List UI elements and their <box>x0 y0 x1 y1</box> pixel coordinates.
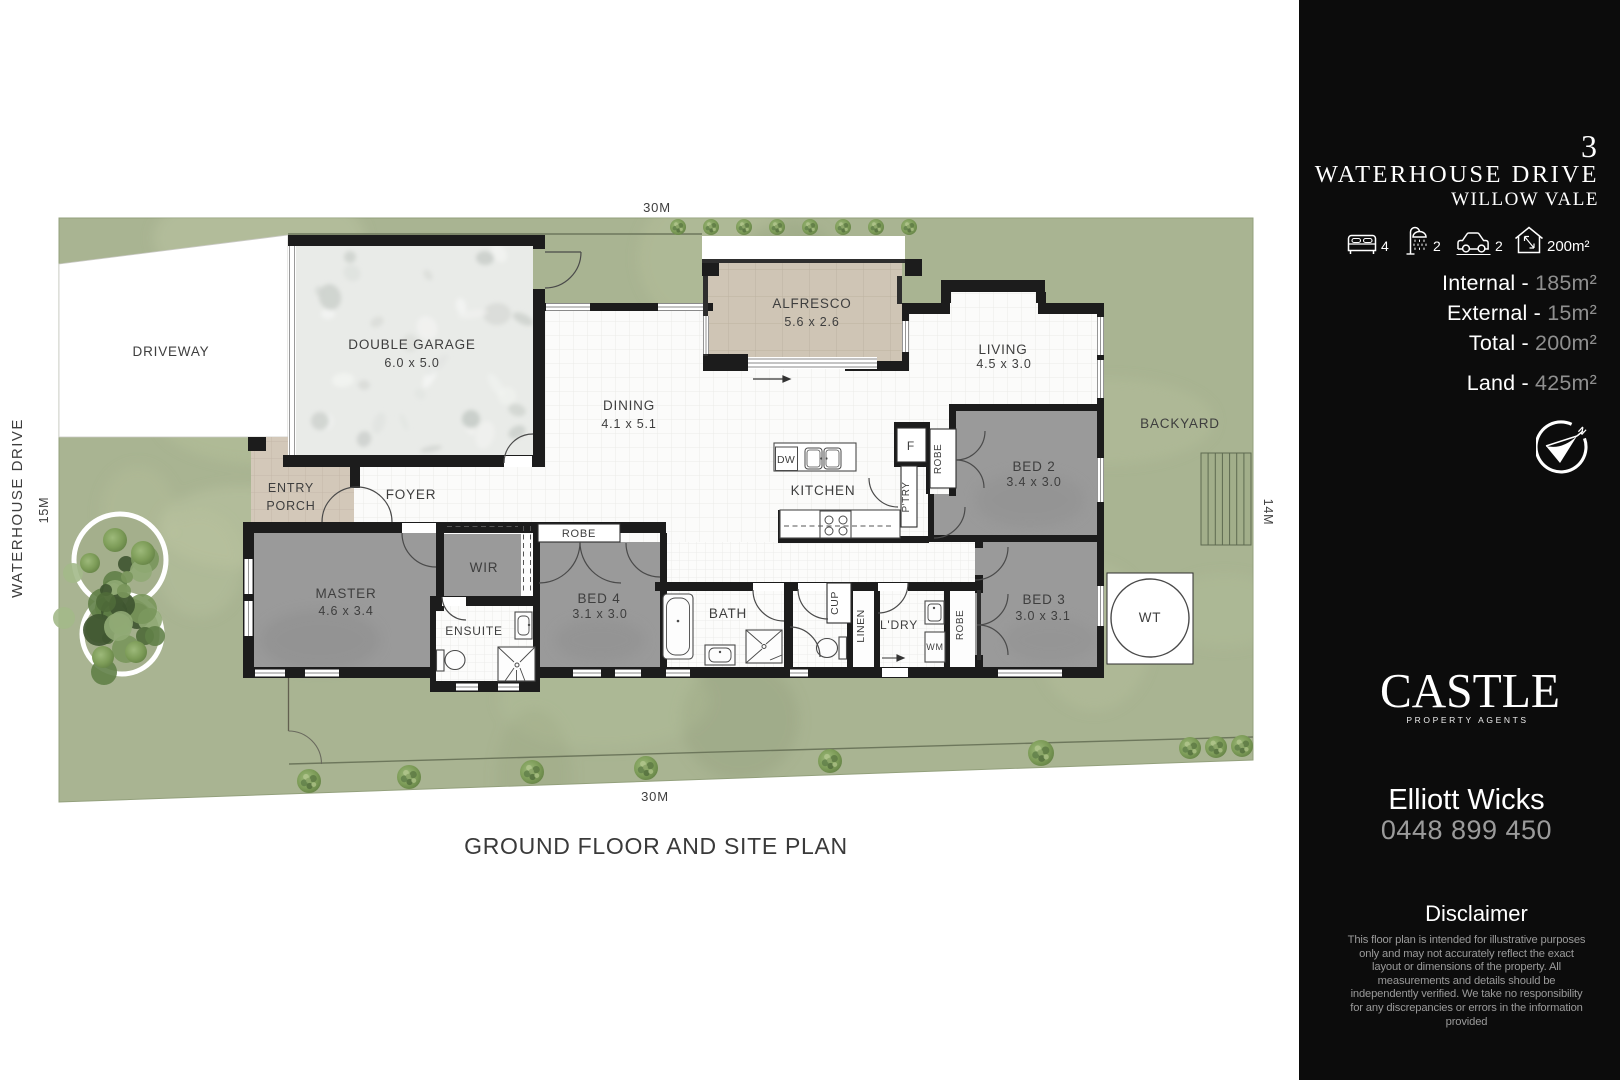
svg-text:6.0 x 5.0: 6.0 x 5.0 <box>384 356 439 370</box>
svg-text:3.1 x 3.0: 3.1 x 3.0 <box>572 607 627 621</box>
svg-text:ENSUITE: ENSUITE <box>445 624 503 638</box>
svg-text:L'DRY: L'DRY <box>880 618 918 632</box>
svg-text:200m²: 200m² <box>1547 238 1590 255</box>
svg-text:LIVING: LIVING <box>978 342 1027 357</box>
svg-text:4.6 x 3.4: 4.6 x 3.4 <box>318 604 373 618</box>
svg-text:LINEN: LINEN <box>855 609 867 642</box>
svg-text:KITCHEN: KITCHEN <box>791 483 856 498</box>
svg-text:3.4 x 3.0: 3.4 x 3.0 <box>1006 475 1061 489</box>
svg-text:2: 2 <box>1495 238 1503 254</box>
svg-text:BED 3: BED 3 <box>1022 592 1065 607</box>
svg-text:4.5 x 3.0: 4.5 x 3.0 <box>976 357 1031 371</box>
svg-text:4.1 x 5.1: 4.1 x 5.1 <box>601 417 656 431</box>
svg-text:4: 4 <box>1381 238 1389 254</box>
svg-text:CUP: CUP <box>829 591 841 615</box>
svg-text:ALFRESCO: ALFRESCO <box>772 296 851 311</box>
svg-text:BATH: BATH <box>709 606 747 621</box>
svg-text:WIR: WIR <box>470 560 499 575</box>
svg-text:BED 2: BED 2 <box>1012 459 1055 474</box>
svg-text:3.0 x 3.1: 3.0 x 3.1 <box>1015 609 1070 623</box>
svg-text:WATERHOUSE DRIVE: WATERHOUSE DRIVE <box>9 418 26 598</box>
svg-text:DINING: DINING <box>603 398 655 413</box>
svg-text:BED 4: BED 4 <box>577 591 620 606</box>
svg-text:ROBE: ROBE <box>955 610 966 640</box>
svg-text:ROBE: ROBE <box>562 528 596 540</box>
svg-text:14M: 14M <box>1261 499 1275 526</box>
svg-text:PORCH: PORCH <box>266 499 315 513</box>
svg-text:GROUND FLOOR AND SITE PLAN: GROUND FLOOR AND SITE PLAN <box>464 833 848 859</box>
svg-text:ENTRY: ENTRY <box>268 481 314 495</box>
svg-text:2: 2 <box>1433 238 1441 254</box>
svg-text:30M: 30M <box>643 200 671 215</box>
svg-text:MASTER: MASTER <box>315 586 376 601</box>
svg-text:P'TRY: P'TRY <box>901 482 912 513</box>
svg-text:WM: WM <box>926 642 944 652</box>
svg-text:DW: DW <box>777 454 795 466</box>
svg-text:DOUBLE GARAGE: DOUBLE GARAGE <box>348 337 475 352</box>
svg-text:ROBE: ROBE <box>933 444 944 474</box>
svg-text:DRIVEWAY: DRIVEWAY <box>133 344 210 359</box>
svg-text:15M: 15M <box>37 497 51 524</box>
svg-text:F: F <box>907 439 915 453</box>
svg-text:BACKYARD: BACKYARD <box>1140 416 1220 431</box>
svg-text:FOYER: FOYER <box>386 487 437 502</box>
svg-text:WT: WT <box>1139 610 1162 625</box>
svg-text:5.6 x 2.6: 5.6 x 2.6 <box>784 315 839 329</box>
svg-text:CASTLE: CASTLE <box>1380 663 1560 718</box>
svg-text:30M: 30M <box>641 789 669 804</box>
